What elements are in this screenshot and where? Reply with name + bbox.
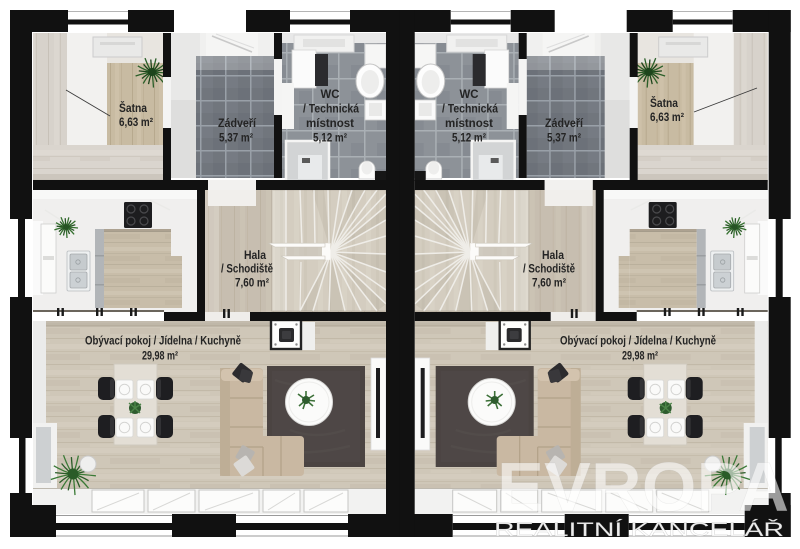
svg-text:Obývací pokoj / Jídelna / Kuch: Obývací pokoj / Jídelna / Kuchyně: [560, 334, 716, 348]
svg-text:6,63 m²: 6,63 m²: [119, 115, 153, 129]
svg-text:5,37 m²: 5,37 m²: [547, 131, 581, 145]
svg-text:EVROPA: EVROPA: [497, 448, 789, 526]
svg-text:5,12 m²: 5,12 m²: [452, 131, 486, 145]
svg-text:7,60 m²: 7,60 m²: [235, 276, 269, 290]
svg-text:WC: WC: [321, 87, 340, 101]
svg-text:Obývací pokoj / Jídelna / Kuch: Obývací pokoj / Jídelna / Kuchyně: [85, 334, 241, 348]
svg-text:Hala: Hala: [542, 248, 564, 262]
svg-text:místnost: místnost: [445, 116, 493, 130]
svg-text:/ Technická: / Technická: [303, 102, 359, 116]
svg-text:místnost: místnost: [306, 116, 354, 130]
svg-text:Zádveří: Zádveří: [545, 116, 584, 130]
svg-text:/ Technická: / Technická: [442, 102, 498, 116]
svg-text:WC: WC: [460, 87, 479, 101]
svg-text:Šatna: Šatna: [119, 100, 147, 115]
svg-text:Šatna: Šatna: [650, 95, 678, 110]
svg-text:REALITNÍ KANCELÁŘ: REALITNÍ KANCELÁŘ: [494, 519, 784, 541]
svg-text:29,98 m²: 29,98 m²: [142, 349, 178, 363]
svg-text:7,60 m²: 7,60 m²: [532, 276, 566, 290]
svg-text:Hala: Hala: [244, 248, 266, 262]
svg-text:Zádveří: Zádveří: [218, 116, 257, 130]
svg-text:5,37 m²: 5,37 m²: [219, 131, 253, 145]
svg-text:5,12 m²: 5,12 m²: [313, 131, 347, 145]
svg-text:6,63 m²: 6,63 m²: [650, 110, 684, 124]
svg-text:/ Schodiště: / Schodiště: [221, 262, 273, 276]
svg-text:/ Schodiště: / Schodiště: [523, 262, 575, 276]
svg-text:29,98 m²: 29,98 m²: [622, 349, 658, 363]
